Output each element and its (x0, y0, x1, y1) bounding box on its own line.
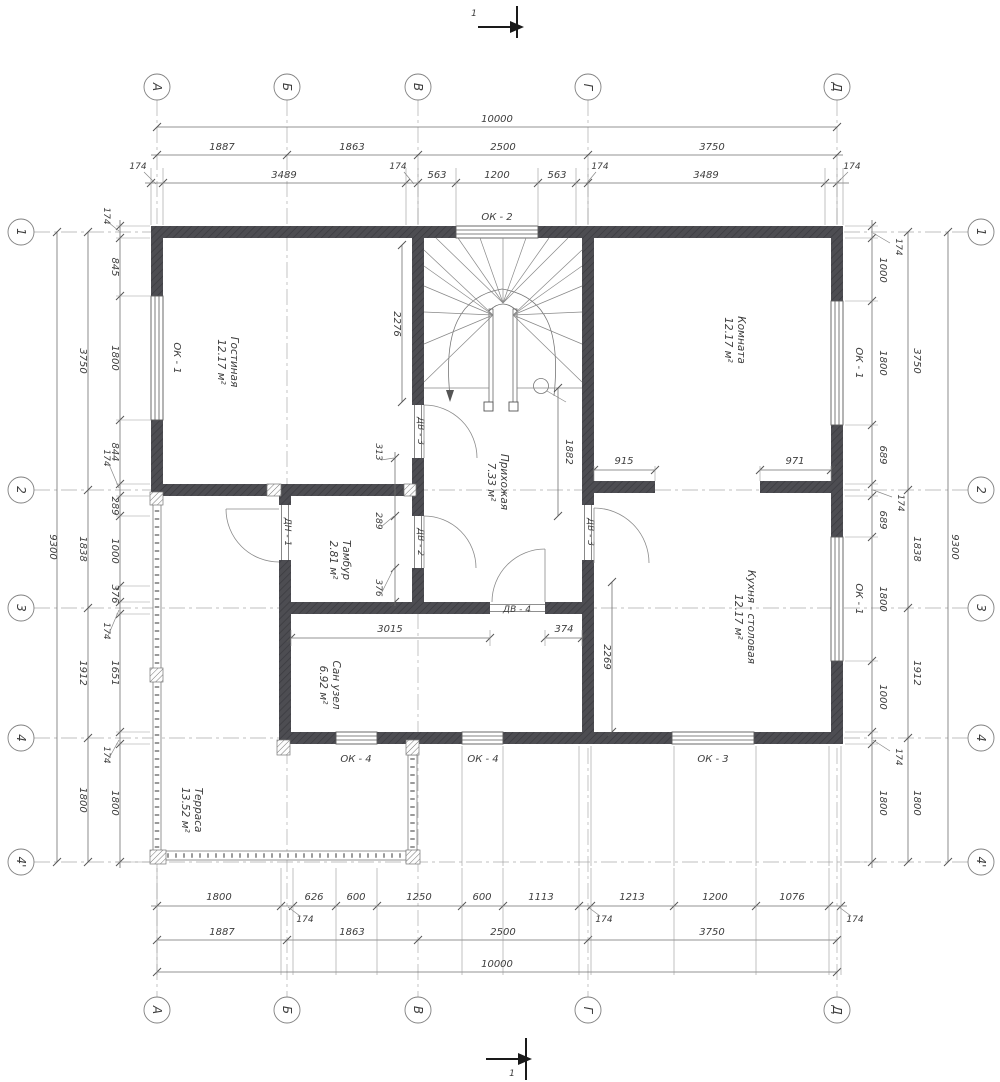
axis-label: А (150, 82, 164, 91)
dim-label: 3750 (699, 142, 724, 153)
room-name: Терраса (192, 788, 204, 833)
dim-label: 3750 (77, 348, 88, 373)
door-swing-arc (594, 508, 649, 563)
axis-label: Д (830, 1004, 844, 1014)
window-label-ok4-a: ОК - 4 (340, 754, 371, 765)
dim-label: 1651 (109, 660, 120, 685)
stair-walk-arrow (446, 390, 454, 402)
dim-label: 2500 (490, 142, 515, 153)
room-name: Прихожая (498, 454, 510, 510)
dim-label: 1887 (209, 142, 235, 153)
dim-label: 1000 (109, 538, 120, 563)
room-name: Гостиная (228, 337, 240, 388)
wall-segment (538, 226, 843, 238)
stair-stringer (513, 309, 517, 409)
room-area: 13.52 м² (179, 787, 191, 833)
wall-segment (754, 732, 843, 744)
wall-segment (503, 732, 672, 744)
dim-label: 1000 (877, 684, 888, 709)
dim-label: 600 (346, 892, 365, 903)
offset-leader (836, 172, 848, 184)
window-frame (831, 537, 843, 661)
room-name: Тамбур (340, 540, 352, 580)
axis-label: Б (280, 83, 294, 91)
offset-label: 174 (101, 207, 111, 224)
offset-label: 174 (591, 162, 608, 172)
dim-label: 1800 (109, 345, 120, 370)
hatched-post (150, 850, 166, 864)
window-frame (831, 301, 843, 425)
axis-label: 3 (14, 604, 28, 612)
dim-label: 1800 (877, 586, 888, 611)
dim-label: 1000 (877, 257, 888, 282)
wall-segment (582, 481, 655, 493)
offset-leader (144, 172, 156, 184)
dim-label: 10000 (481, 114, 513, 125)
offset-leader (108, 462, 119, 488)
floor-plan-canvas: ОК - 2ОК - 1ОК - 1ОК - 1ОК - 4ОК - 4ОК -… (0, 0, 1000, 1082)
offset-label: 174 (101, 746, 111, 763)
door-label-dv4: ДВ - 4 (502, 605, 531, 615)
offset-leader (108, 222, 119, 231)
window-label-ok2: ОК - 2 (481, 212, 512, 223)
dim-label: 9300 (949, 534, 960, 559)
dim-label: 376 (373, 579, 383, 596)
dim-label: 1200 (484, 170, 509, 181)
dim-label: 2276 (391, 311, 402, 336)
dim-label: 600 (472, 892, 491, 903)
offset-label: 174 (846, 915, 863, 925)
window-frame (151, 296, 163, 420)
dim-label: 1800 (877, 350, 888, 375)
wall-segment (279, 602, 490, 614)
room-area: 7.33 м² (485, 463, 497, 503)
axis-label: 4' (14, 857, 28, 868)
offset-label: 174 (893, 238, 903, 255)
axis-label: 1 (974, 228, 988, 236)
stair-tread (503, 238, 568, 303)
room-area: 2.81 м² (327, 541, 339, 581)
door-label-dv2: ДВ - 2 (415, 527, 425, 556)
stair-symbol-leader (547, 391, 566, 402)
axis-label: Д (830, 81, 844, 91)
axis-label: А (150, 1005, 164, 1014)
dim-label: 971 (785, 456, 804, 467)
stair-newel (509, 402, 518, 411)
offset-leader (404, 172, 414, 184)
offset-label: 174 (893, 748, 903, 765)
wall-segment (760, 481, 831, 493)
dim-label: 1882 (563, 439, 574, 464)
window-ok1-left (151, 296, 163, 420)
wall-segment (163, 484, 412, 496)
dim-label: 1838 (911, 536, 922, 561)
dim-label: 1838 (77, 536, 88, 561)
dim-label: 3015 (377, 624, 402, 635)
wall-segment (151, 420, 163, 496)
section-mark-label: 1 (509, 1069, 515, 1079)
window-ok4-a (336, 732, 377, 744)
stair-tread (480, 238, 503, 303)
dim-label: 9300 (47, 534, 58, 559)
offset-label: 174 (389, 162, 406, 172)
dim-label: 3750 (911, 348, 922, 373)
wall-segment (151, 226, 456, 238)
room-area: 6.92 м² (317, 666, 329, 706)
dim-label: 689 (877, 445, 888, 464)
dim-label: 1800 (77, 787, 88, 812)
floor-plan-drawing: ОК - 2ОК - 1ОК - 1ОК - 1ОК - 4ОК - 4ОК -… (0, 0, 1000, 1082)
dim-label: 1912 (77, 660, 88, 685)
dim-label: 1800 (206, 892, 231, 903)
offset-leader (588, 907, 600, 916)
window-frame (336, 732, 377, 744)
door-swing-arc (424, 405, 477, 458)
hatched-post (277, 740, 290, 755)
dim-label: 1213 (619, 892, 644, 903)
dim-label: 3489 (271, 170, 296, 181)
room-name: Сан узел (330, 661, 342, 710)
stair-stringer (489, 309, 493, 409)
window-label-ok1-right-bottom: ОК - 1 (853, 583, 864, 614)
dim-label: 376 (109, 584, 120, 603)
staircase (446, 289, 556, 411)
wall-segment (151, 226, 163, 296)
dim-label: 845 (109, 257, 120, 276)
hatched-post (406, 850, 420, 864)
dim-label: 689 (877, 510, 888, 529)
section-mark-label: 1 (471, 9, 477, 19)
dim-label: 1113 (528, 892, 553, 903)
axis-label: В (411, 1006, 425, 1014)
hatched-post (404, 484, 416, 496)
stair-tread (458, 238, 503, 303)
door-label-dv3-hall: ДВ - 3 (415, 416, 425, 445)
dim-label: 289 (109, 496, 120, 515)
stair-symbol-circle (534, 379, 549, 394)
door-swing-arc (226, 509, 279, 562)
dim-label: 1887 (209, 927, 235, 938)
window-frame (672, 732, 754, 744)
dim-label: 1912 (911, 660, 922, 685)
hatched-post (267, 484, 281, 496)
window-ok4-b (462, 732, 503, 744)
wall-segment (831, 226, 843, 301)
dim-label: 2500 (490, 927, 515, 938)
room-area: 12.17 м² (722, 317, 734, 363)
stair-tread (513, 315, 582, 344)
window-label-ok1-right-top: ОК - 1 (853, 347, 864, 378)
dim-label: 915 (614, 456, 633, 467)
window-ok2 (456, 226, 538, 238)
stair-tread (513, 312, 582, 315)
wall-segment (412, 238, 424, 405)
dim-label: 1076 (779, 892, 804, 903)
axis-label: 1 (14, 228, 28, 236)
axis-label: 2 (974, 486, 988, 494)
dim-label: 3489 (693, 170, 718, 181)
stair-tread (424, 312, 493, 315)
dim-label: 289 (373, 512, 383, 529)
dim-label: 1800 (911, 790, 922, 815)
axis-label: 4 (974, 734, 988, 742)
offset-leader (873, 740, 890, 751)
dim-label: 1863 (339, 927, 364, 938)
room-area: 12.17 м² (732, 594, 744, 640)
offset-label: 174 (296, 915, 313, 925)
door-swing-arc (492, 549, 545, 602)
dim-label: 1200 (702, 892, 727, 903)
room-name: Кухня - столовая (745, 570, 757, 664)
room-area: 12.17 м² (215, 339, 227, 385)
dim-label: 563 (547, 170, 566, 181)
wall-segment (279, 560, 291, 732)
offset-leader (288, 907, 300, 916)
wall-segment (377, 732, 462, 744)
stair-tread (503, 238, 549, 303)
window-ok1-right-bottom (831, 537, 843, 661)
wall-segment (545, 602, 594, 614)
stair-newel (484, 402, 493, 411)
room-name: Комната (735, 316, 747, 364)
door-label-dv3-kitchen: ДВ - 3 (585, 517, 595, 546)
offset-leader (586, 172, 596, 184)
dim-label: 1250 (406, 892, 431, 903)
wall-segment (582, 238, 594, 505)
axis-label: 3 (974, 604, 988, 612)
window-label-ok3: ОК - 3 (697, 754, 728, 765)
dim-label: 313 (373, 443, 383, 460)
wall-segment (279, 496, 291, 505)
wall-segment (582, 560, 594, 732)
stair-tread (424, 315, 493, 382)
hatched-post (150, 668, 163, 682)
offset-label: 174 (843, 162, 860, 172)
window-ok3 (672, 732, 754, 744)
window-label-ok4-b: ОК - 4 (467, 754, 498, 765)
dim-label: 1800 (877, 790, 888, 815)
offset-label: 174 (101, 449, 111, 466)
hatched-post (406, 740, 419, 755)
dim-label: 374 (554, 624, 573, 635)
dim-label: 2269 (601, 644, 612, 669)
door-swing-arc (424, 516, 476, 568)
dim-label: 563 (427, 170, 446, 181)
axis-label: 4 (14, 734, 28, 742)
wall-segment (831, 661, 843, 744)
dim-label: 626 (304, 892, 323, 903)
dim-label: 3750 (699, 927, 724, 938)
window-label-ok1-left: ОК - 1 (171, 342, 182, 373)
offset-label: 174 (129, 162, 146, 172)
window-frame (462, 732, 503, 744)
axis-label: 4' (974, 857, 988, 868)
axis-label: Б (280, 1006, 294, 1014)
door-label-dn1: ДН - 1 (282, 517, 292, 547)
axis-label: 2 (14, 486, 28, 494)
window-ok1-right-top (831, 301, 843, 425)
axis-label: В (411, 83, 425, 91)
wall-segment (831, 425, 843, 537)
offset-label: 174 (895, 494, 905, 511)
dim-label: 1863 (339, 142, 364, 153)
stair-tread (513, 315, 582, 382)
offset-label: 174 (595, 915, 612, 925)
offset-label: 174 (101, 622, 111, 639)
stair-tread (503, 238, 526, 303)
terrace-balustrade (408, 755, 417, 851)
dim-label: 1800 (109, 790, 120, 815)
hatched-post (150, 492, 163, 505)
dim-label: 10000 (481, 959, 513, 970)
window-frame (456, 226, 538, 238)
